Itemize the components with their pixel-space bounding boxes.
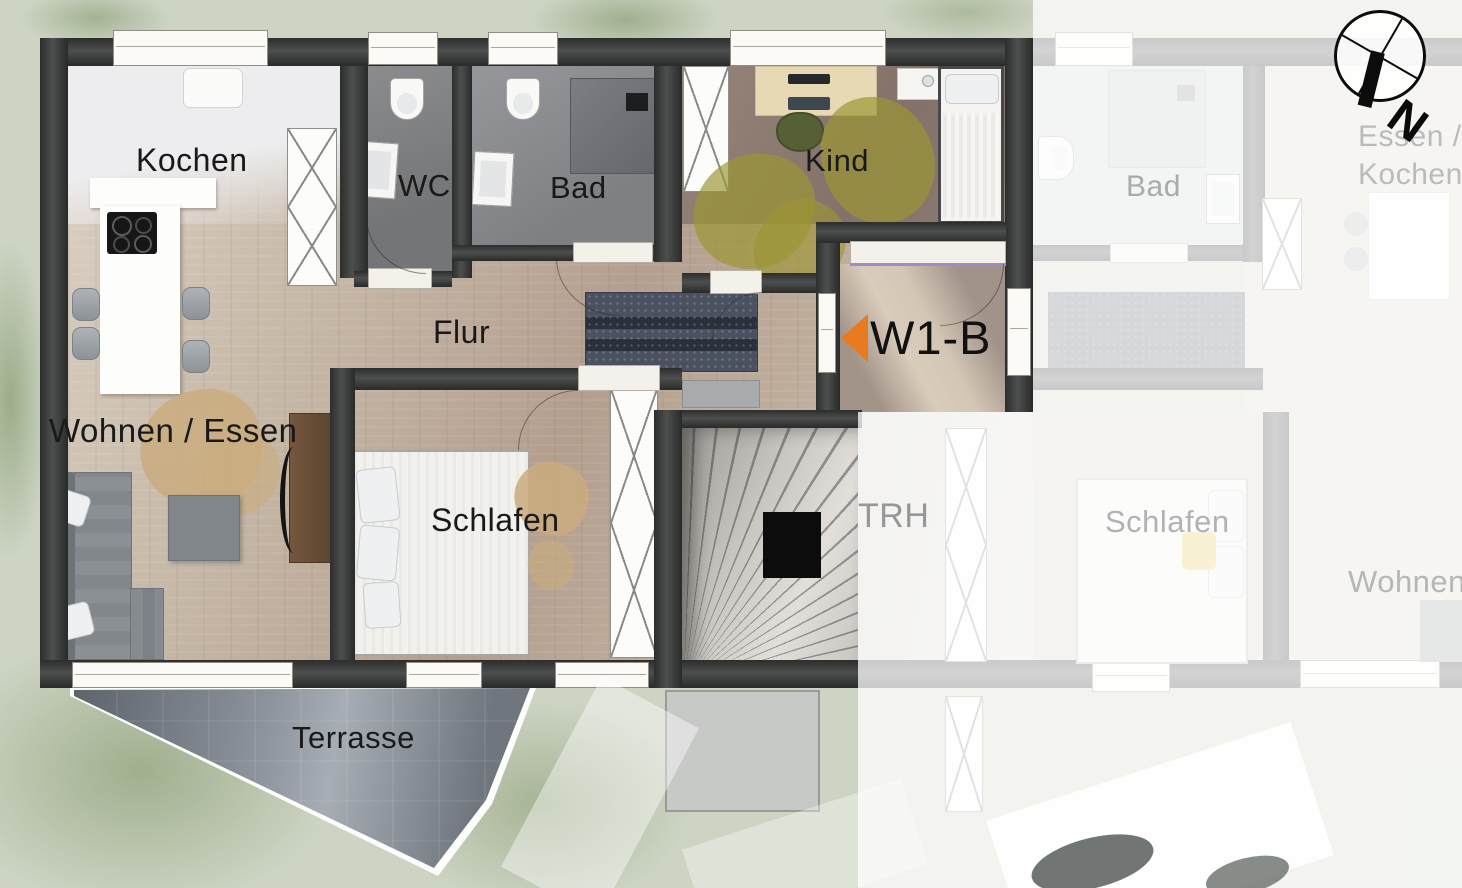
room-label-kochen: Kochen (136, 142, 248, 179)
room-label-wc: WC (398, 168, 451, 204)
foliage-blob (880, 0, 1050, 42)
window (488, 32, 558, 65)
schlafen-wardrobe (610, 388, 658, 658)
dining-chair (182, 287, 210, 320)
shower-drain (626, 93, 648, 111)
adjacent-label-wohnen: Wohnen (1348, 564, 1462, 600)
wall-kind-south-b (816, 222, 1006, 243)
window (1007, 288, 1031, 376)
burner (113, 236, 130, 253)
wall-stairwell-top (654, 410, 862, 428)
dining-chair (182, 340, 210, 373)
bad-toilet (506, 78, 540, 120)
bed-blanket (943, 113, 999, 217)
window (72, 662, 293, 688)
room-label-schlafen: Schlafen (431, 502, 560, 539)
wall-stairwell-left (654, 410, 682, 688)
door-schlafen (578, 365, 660, 391)
wall-left (40, 38, 68, 688)
kitchen-tall-cabinet (287, 128, 337, 286)
porch (665, 690, 820, 812)
room-label-terrasse: Terrasse (292, 720, 415, 756)
room-label-wohnen-essen: Wohnen / Essen (49, 412, 298, 450)
kitchen-counter-top (90, 178, 216, 208)
faded-overlay (858, 412, 1462, 888)
adjacent-label-schlafen: Schlafen (1105, 504, 1230, 540)
door-kind (710, 270, 762, 294)
dining-chair (72, 288, 100, 321)
burner (134, 235, 152, 253)
shower (570, 78, 662, 174)
wall-schlafen-left (330, 368, 355, 660)
desk-keyboard (788, 97, 830, 110)
wc-toilet (390, 78, 424, 120)
burner (112, 216, 132, 236)
burner (135, 217, 152, 234)
table-lamp (922, 75, 934, 87)
tv-icon (280, 447, 307, 553)
kitchen-sink (183, 68, 243, 108)
window (368, 32, 438, 65)
window-sidelight (818, 293, 836, 373)
wall-kochen-wc (340, 66, 368, 278)
stairwell-void (763, 512, 821, 578)
unit-label: W1-B (870, 310, 992, 365)
window (113, 30, 268, 66)
stairwell-label: TRH (858, 497, 929, 536)
window (730, 30, 886, 66)
coffee-table (168, 495, 240, 561)
cooktop (107, 212, 157, 254)
kind-bed (938, 66, 1004, 224)
window (406, 662, 482, 688)
unit-marker-arrow-icon (841, 314, 868, 362)
floorplan-canvas: Kochen WC Bad Kind Flur Wohnen / Essen S… (0, 0, 1462, 888)
room-label-kind: Kind (805, 143, 869, 179)
hall-sideboard (682, 380, 760, 408)
kind-side-table (897, 68, 939, 100)
desk-monitor (788, 74, 830, 84)
dining-chair (72, 327, 100, 360)
adjacent-label-essen-line2: Kochen (1358, 158, 1462, 192)
door-entry (850, 241, 1006, 265)
sofa-chaise (130, 588, 164, 660)
room-label-bad: Bad (550, 170, 607, 206)
main-bed (352, 450, 530, 656)
room-label-flur: Flur (433, 314, 490, 351)
adjacent-label-bad: Bad (1126, 170, 1181, 204)
wall-bad-kind (654, 66, 682, 262)
bad-sink (472, 151, 515, 207)
